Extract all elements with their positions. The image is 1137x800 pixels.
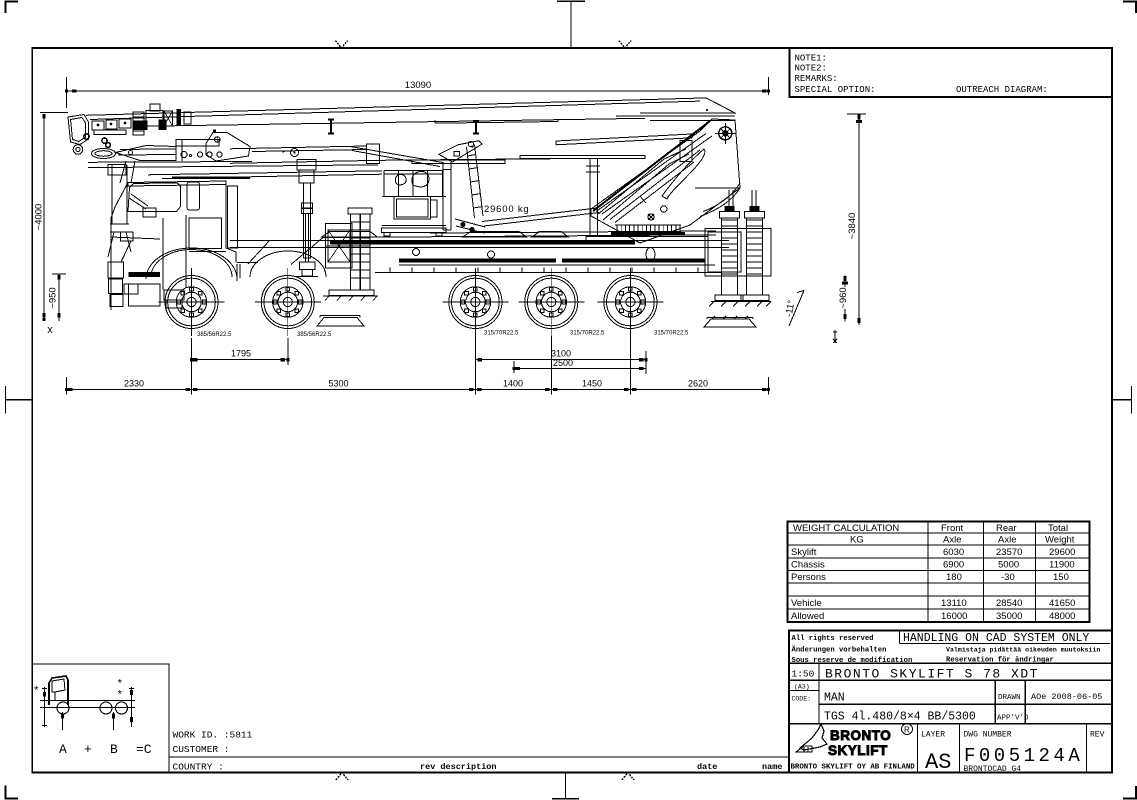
- svg-text:AS: AS: [925, 750, 951, 775]
- svg-text:CUSTOMER :: CUSTOMER :: [173, 744, 230, 755]
- svg-text:Valmistaja pidättää oikeuden m: Valmistaja pidättää oikeuden muutoksiin: [946, 647, 1100, 654]
- svg-text:Axle: Axle: [998, 535, 1016, 546]
- svg-text:Axle: Axle: [943, 535, 961, 546]
- svg-text:DWG NUMBER: DWG NUMBER: [964, 731, 1012, 740]
- svg-text:3100: 3100: [551, 349, 571, 359]
- svg-text:*: *: [117, 690, 124, 702]
- svg-text:~960: ~960: [838, 287, 849, 308]
- svg-text:Reservation för ändringar: Reservation för ändringar: [946, 657, 1054, 665]
- svg-text:TGS 4l.480/8×4 BB/5300: TGS 4l.480/8×4 BB/5300: [824, 711, 976, 724]
- svg-text:OUTREACH DIAGRAM:: OUTREACH DIAGRAM:: [956, 85, 1048, 95]
- svg-text:(A3): (A3): [794, 684, 810, 691]
- svg-text:6900: 6900: [943, 560, 964, 571]
- svg-text:~950: ~950: [48, 287, 59, 308]
- svg-text:Änderungen vorbehalten: Änderungen vorbehalten: [792, 646, 887, 655]
- svg-text:13110: 13110: [941, 598, 967, 609]
- svg-text:LAYER: LAYER: [921, 731, 945, 740]
- svg-text:date: date: [697, 762, 717, 772]
- svg-text:All rights reserved: All rights reserved: [792, 635, 874, 643]
- svg-text:48000: 48000: [1049, 611, 1075, 622]
- svg-text:13090: 13090: [405, 80, 431, 91]
- svg-text:COUNTRY :: COUNTRY :: [173, 762, 224, 773]
- svg-text:315/70R22.5: 315/70R22.5: [484, 331, 519, 337]
- svg-text:Front: Front: [941, 523, 964, 534]
- svg-text:WORK ID. :5811: WORK ID. :5811: [173, 730, 253, 741]
- svg-text:Allowed: Allowed: [791, 611, 824, 622]
- svg-text:APP'V'D: APP'V'D: [997, 715, 1029, 723]
- svg-text:385/56R22.5: 385/56R22.5: [297, 332, 332, 338]
- svg-text:Sous reserve de modification: Sous reserve de modification: [792, 657, 913, 665]
- svg-text:DRAWN: DRAWN: [998, 694, 1021, 702]
- svg-text:BRONTO SKYLIFT S 78 XDT: BRONTO SKYLIFT S 78 XDT: [825, 667, 1039, 682]
- svg-text:NOTE2:: NOTE2:: [795, 64, 827, 74]
- svg-text:BRONTOCAD G4: BRONTOCAD G4: [964, 765, 1022, 774]
- svg-text:180: 180: [946, 572, 962, 583]
- svg-text:=C: =C: [136, 742, 152, 757]
- svg-text:BRONTO: BRONTO: [830, 728, 891, 743]
- svg-text:2620: 2620: [688, 379, 708, 389]
- svg-text:Rear: Rear: [996, 523, 1017, 534]
- svg-text:29600 kg: 29600 kg: [484, 204, 530, 215]
- svg-text:Total: Total: [1048, 523, 1068, 534]
- svg-text:28540: 28540: [996, 598, 1022, 609]
- svg-text:Weight: Weight: [1045, 535, 1075, 546]
- svg-text:F005124A: F005124A: [964, 745, 1083, 767]
- svg-text:~3840: ~3840: [847, 213, 858, 240]
- svg-text:Persons: Persons: [791, 572, 826, 583]
- svg-text:-30: -30: [1001, 572, 1015, 583]
- svg-text:KG: KG: [850, 535, 864, 546]
- svg-text:Chassis: Chassis: [791, 560, 825, 571]
- svg-text:R: R: [904, 726, 910, 735]
- svg-text:BRONTO SKYLIFT OY AB FINLAND: BRONTO SKYLIFT OY AB FINLAND: [791, 764, 916, 772]
- svg-text:35000: 35000: [996, 611, 1022, 622]
- svg-text:rev description: rev description: [420, 762, 497, 772]
- svg-text:Vehicle: Vehicle: [791, 598, 822, 609]
- svg-text:SPECIAL OPTION:: SPECIAL OPTION:: [795, 85, 876, 95]
- svg-text:+: +: [84, 742, 92, 757]
- svg-text:Skylift: Skylift: [791, 547, 817, 558]
- svg-text:REMARKS:: REMARKS:: [795, 74, 838, 84]
- svg-text:11900: 11900: [1049, 560, 1075, 571]
- svg-text:29600: 29600: [1049, 547, 1075, 558]
- svg-text:41650: 41650: [1049, 598, 1075, 609]
- svg-text:WEIGHT CALCULATION: WEIGHT CALCULATION: [793, 523, 899, 534]
- svg-text:1400: 1400: [503, 379, 523, 389]
- svg-text:1:50: 1:50: [792, 669, 815, 680]
- svg-text:315/70R22.5: 315/70R22.5: [654, 331, 689, 337]
- svg-text:6030: 6030: [943, 547, 964, 558]
- svg-text:A: A: [59, 742, 67, 757]
- svg-text:~4000: ~4000: [34, 204, 45, 231]
- svg-text:385/56R22.5: 385/56R22.5: [197, 332, 232, 338]
- svg-text:23570: 23570: [996, 547, 1022, 558]
- svg-text:315/70R22.5: 315/70R22.5: [570, 331, 605, 337]
- svg-text:16000: 16000: [941, 611, 967, 622]
- svg-text:*: *: [33, 686, 40, 698]
- svg-text:NOTE1:: NOTE1:: [795, 54, 827, 64]
- svg-text:name: name: [762, 762, 782, 772]
- svg-text:1450: 1450: [582, 379, 602, 389]
- svg-text:5300: 5300: [328, 379, 348, 389]
- svg-text:2330: 2330: [124, 379, 144, 389]
- svg-text:CODE:: CODE:: [792, 696, 812, 703]
- svg-text:B: B: [110, 742, 118, 757]
- svg-text:MAN: MAN: [824, 692, 845, 705]
- svg-text:SKYLIFT: SKYLIFT: [828, 743, 888, 758]
- svg-text:1795: 1795: [231, 349, 251, 359]
- svg-text:AOe 2008-06-05: AOe 2008-06-05: [1031, 692, 1102, 702]
- svg-text:5000: 5000: [998, 560, 1019, 571]
- svg-text:HANDLING ON CAD SYSTEM ONLY: HANDLING ON CAD SYSTEM ONLY: [903, 632, 1089, 645]
- svg-text:150: 150: [1053, 572, 1069, 583]
- svg-text:REV: REV: [1090, 731, 1105, 740]
- svg-text:2500: 2500: [553, 358, 573, 368]
